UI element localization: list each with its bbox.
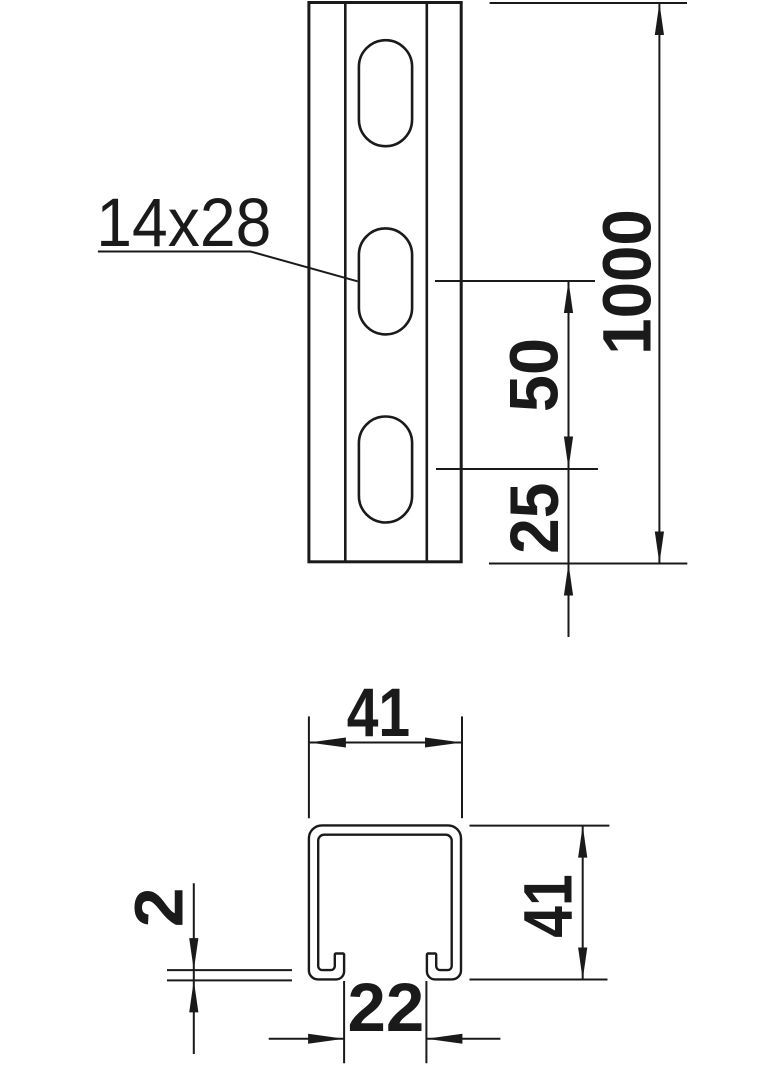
svg-text:22: 22 xyxy=(348,969,425,1046)
svg-text:14x28: 14x28 xyxy=(96,184,271,261)
svg-text:50: 50 xyxy=(496,338,573,412)
svg-text:41: 41 xyxy=(509,874,586,937)
svg-text:1000: 1000 xyxy=(588,209,665,355)
svg-text:2: 2 xyxy=(120,887,197,927)
svg-text:25: 25 xyxy=(496,483,573,554)
svg-text:41: 41 xyxy=(347,674,410,751)
